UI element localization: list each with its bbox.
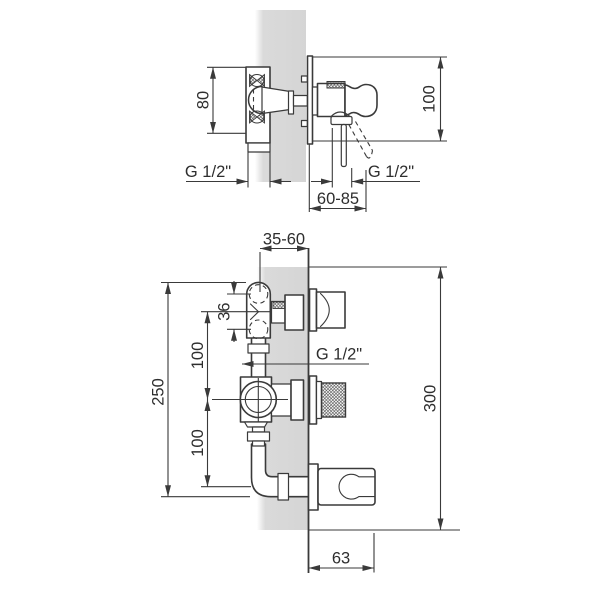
top-knob xyxy=(317,292,346,328)
dim-80: 80 xyxy=(194,67,246,133)
union-nut xyxy=(248,432,270,441)
pipe-union xyxy=(278,474,289,501)
dim-63: 63 xyxy=(309,533,375,573)
top-escutcheon xyxy=(310,289,317,331)
dim-label-100-upper: 100 xyxy=(189,342,207,370)
outlet-collar xyxy=(331,117,352,125)
diverter-cartridge xyxy=(291,380,304,420)
wall-anchor-bottom xyxy=(302,121,308,127)
external-trim xyxy=(308,56,378,167)
diverter-escutcheon xyxy=(310,376,317,424)
dim-60-85: 60-85 xyxy=(309,144,366,212)
dim-label-100-side: 100 xyxy=(420,85,438,113)
dim-100-upper: 100 xyxy=(189,312,246,400)
dim-label-80: 80 xyxy=(194,91,212,109)
side-view: 80 100 G 1/2" G 1/2" 60-85 xyxy=(185,10,447,212)
thread-label-middle: G 1/2" xyxy=(316,346,362,364)
dim-250: 250 xyxy=(149,283,250,497)
dim-label-60-85: 60-85 xyxy=(317,190,359,208)
thread-label-right: G 1/2" xyxy=(368,163,414,181)
mixer-installation-drawing: 80 100 G 1/2" G 1/2" 60-85 xyxy=(0,0,600,600)
cartridge xyxy=(262,87,290,114)
knurled-diverter-knob xyxy=(322,383,346,417)
assembly-view: 35-60 36 100 100 250 G 1/2" xyxy=(149,231,460,574)
dim-label-300: 300 xyxy=(421,385,439,413)
wall-plate xyxy=(308,56,313,144)
thread-label-left: G 1/2" xyxy=(185,163,231,181)
stem-flange xyxy=(289,91,294,114)
bracket-escutcheon xyxy=(309,464,319,510)
handset-holder-profile xyxy=(345,85,377,117)
dim-300: 300 xyxy=(421,267,440,530)
top-cartridge xyxy=(285,295,304,330)
wall-anchor-top xyxy=(302,76,308,82)
stem-shaft xyxy=(294,96,308,107)
dim-label-100-lower: 100 xyxy=(189,429,207,457)
knurled-ring xyxy=(327,82,345,89)
technical-drawing-page: 80 100 G 1/2" G 1/2" 60-85 xyxy=(0,0,600,600)
lever-handle xyxy=(341,125,346,167)
dim-label-35-60: 35-60 xyxy=(263,231,305,249)
handshower-bracket xyxy=(318,469,375,506)
lever-alt-position xyxy=(349,122,373,159)
dim-label-250: 250 xyxy=(149,378,167,406)
dim-label-63: 63 xyxy=(332,550,350,568)
